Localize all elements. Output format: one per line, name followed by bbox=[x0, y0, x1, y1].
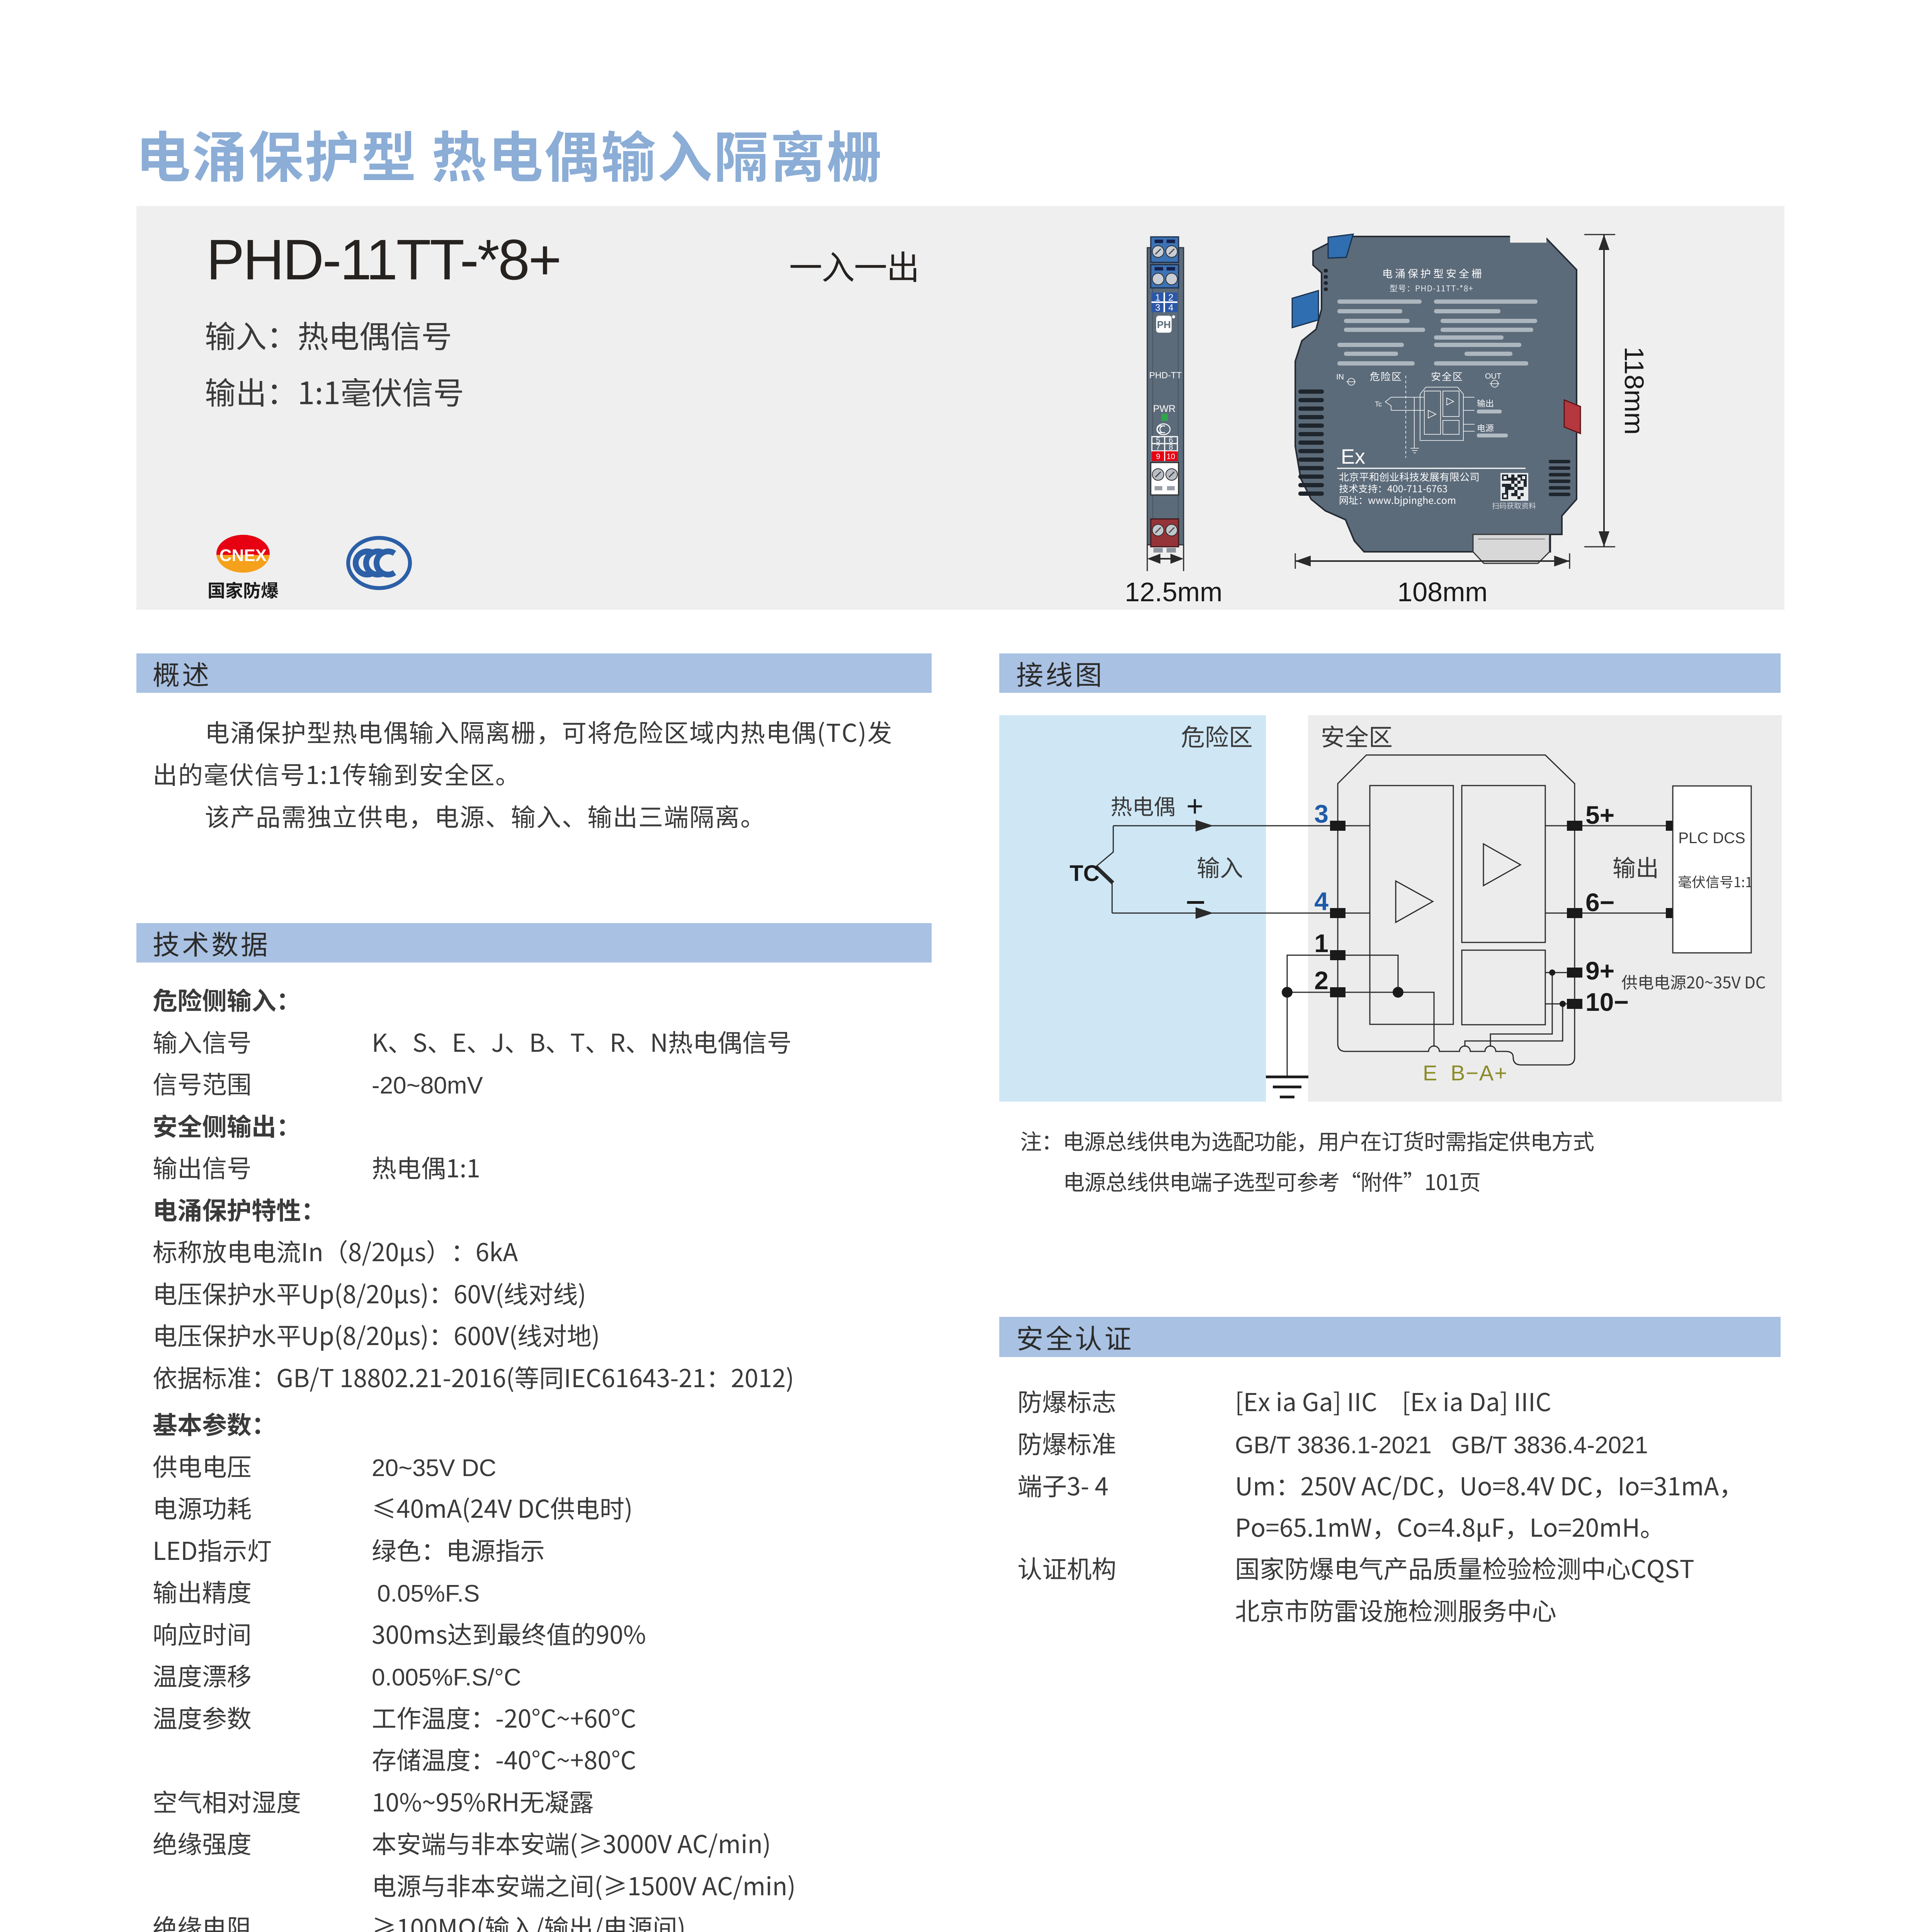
svg-text:E: E bbox=[1423, 1061, 1437, 1085]
svg-text:118mm: 118mm bbox=[1619, 347, 1649, 435]
svg-text:IN: IN bbox=[1336, 373, 1344, 381]
svg-text:0.05%F.S: 0.05%F.S bbox=[377, 1580, 480, 1607]
svg-text:OUT: OUT bbox=[1485, 372, 1501, 381]
svg-text:Tc: Tc bbox=[1375, 400, 1382, 408]
svg-text:CNEX: CNEX bbox=[219, 546, 267, 565]
svg-text:GB/T 3836.4-2021: GB/T 3836.4-2021 bbox=[1451, 1432, 1648, 1459]
svg-text:20~35V DC: 20~35V DC bbox=[372, 1455, 496, 1481]
svg-text:PHD-TT: PHD-TT bbox=[1149, 370, 1182, 380]
svg-text:9+: 9+ bbox=[1585, 956, 1614, 985]
svg-text:10: 10 bbox=[1167, 452, 1175, 461]
svg-text:PH: PH bbox=[1157, 319, 1171, 330]
svg-text:Ex: Ex bbox=[1341, 445, 1365, 468]
svg-text:+: + bbox=[1186, 790, 1203, 823]
svg-text:108mm: 108mm bbox=[1397, 577, 1487, 607]
svg-text:PLC DCS: PLC DCS bbox=[1678, 830, 1745, 847]
svg-text:12.5mm: 12.5mm bbox=[1125, 577, 1223, 607]
svg-text:PWR: PWR bbox=[1153, 403, 1175, 414]
svg-text:8: 8 bbox=[1169, 443, 1173, 452]
svg-text:5+: 5+ bbox=[1585, 801, 1614, 829]
svg-text:B−A+: B−A+ bbox=[1451, 1061, 1508, 1085]
svg-text:TC: TC bbox=[1070, 861, 1099, 886]
svg-text:4: 4 bbox=[1314, 887, 1328, 915]
svg-text:GB/T 3836.1-2021: GB/T 3836.1-2021 bbox=[1235, 1432, 1432, 1459]
svg-text:3: 3 bbox=[1155, 303, 1160, 313]
svg-text:-20~80mV: -20~80mV bbox=[372, 1072, 483, 1099]
svg-text:1: 1 bbox=[1314, 929, 1328, 957]
svg-text:PHD-11TT-*8+: PHD-11TT-*8+ bbox=[206, 228, 560, 292]
svg-text:6−: 6− bbox=[1585, 888, 1614, 917]
svg-text:7: 7 bbox=[1156, 443, 1160, 452]
svg-text:2: 2 bbox=[1314, 966, 1328, 995]
svg-text:9: 9 bbox=[1156, 452, 1160, 461]
svg-text:3: 3 bbox=[1314, 799, 1328, 828]
svg-text:1: 1 bbox=[1155, 293, 1160, 303]
svg-text:10−: 10− bbox=[1585, 988, 1629, 1016]
svg-text:0.005%F.S/°C: 0.005%F.S/°C bbox=[372, 1664, 521, 1691]
svg-text:2: 2 bbox=[1168, 293, 1173, 303]
svg-text:4: 4 bbox=[1168, 303, 1173, 313]
